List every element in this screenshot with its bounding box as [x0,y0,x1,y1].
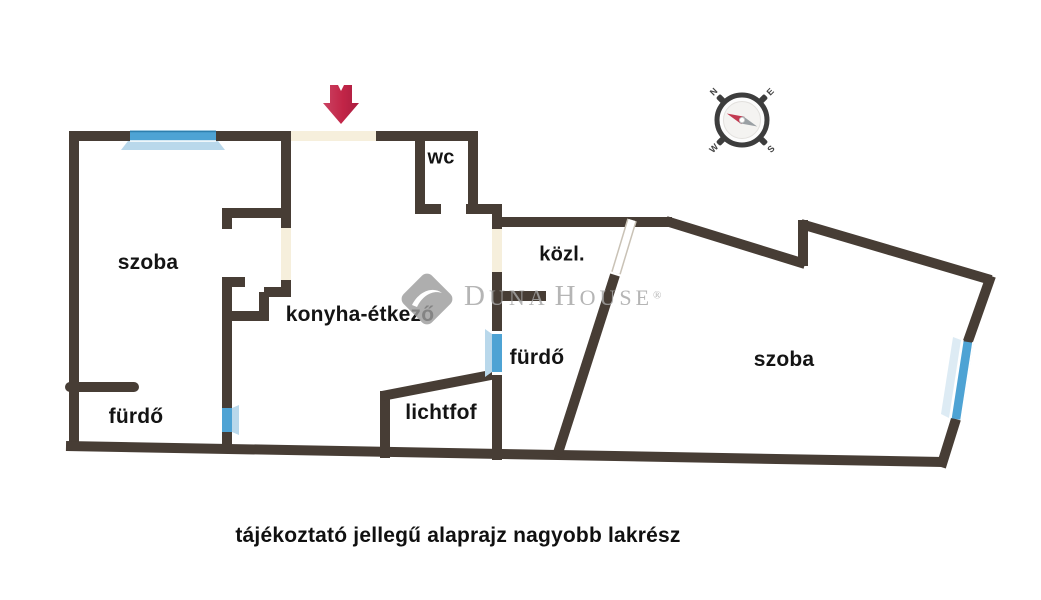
room-label-szoba-right: szoba [754,348,815,372]
room-label-wc: wc [427,147,454,170]
room-label-lichtfof: lichtfof [405,401,477,425]
window-flare [121,141,225,150]
room-label-szoba-left: szoba [118,251,179,275]
room-label-kozl: közl. [539,244,584,267]
compass-s-label: S [765,143,776,154]
room-label-furdo-left: fürdő [109,405,164,429]
floor-plan-walls: N E S W [0,0,1041,600]
room-label-konyha-etkezo: konyha-étkező [286,303,434,327]
door-leaf [616,220,632,273]
window-flare [485,329,492,377]
compass-n-label: N [708,86,720,98]
room-label-furdo-middle: fürdő [510,346,565,370]
entrance-arrow-icon [323,85,359,124]
window-flare [232,405,239,435]
compass-icon: N E S W [679,58,805,184]
door-openings [286,136,497,280]
plan-caption: tájékoztató jellegű alaprajz nagyobb lak… [235,524,680,548]
compass-e-label: E [765,86,776,97]
floor-plan: N E S W szoba wc közl. konyha-étkező für… [0,0,1041,600]
wall-lines [66,131,991,467]
window-markers [121,132,973,436]
